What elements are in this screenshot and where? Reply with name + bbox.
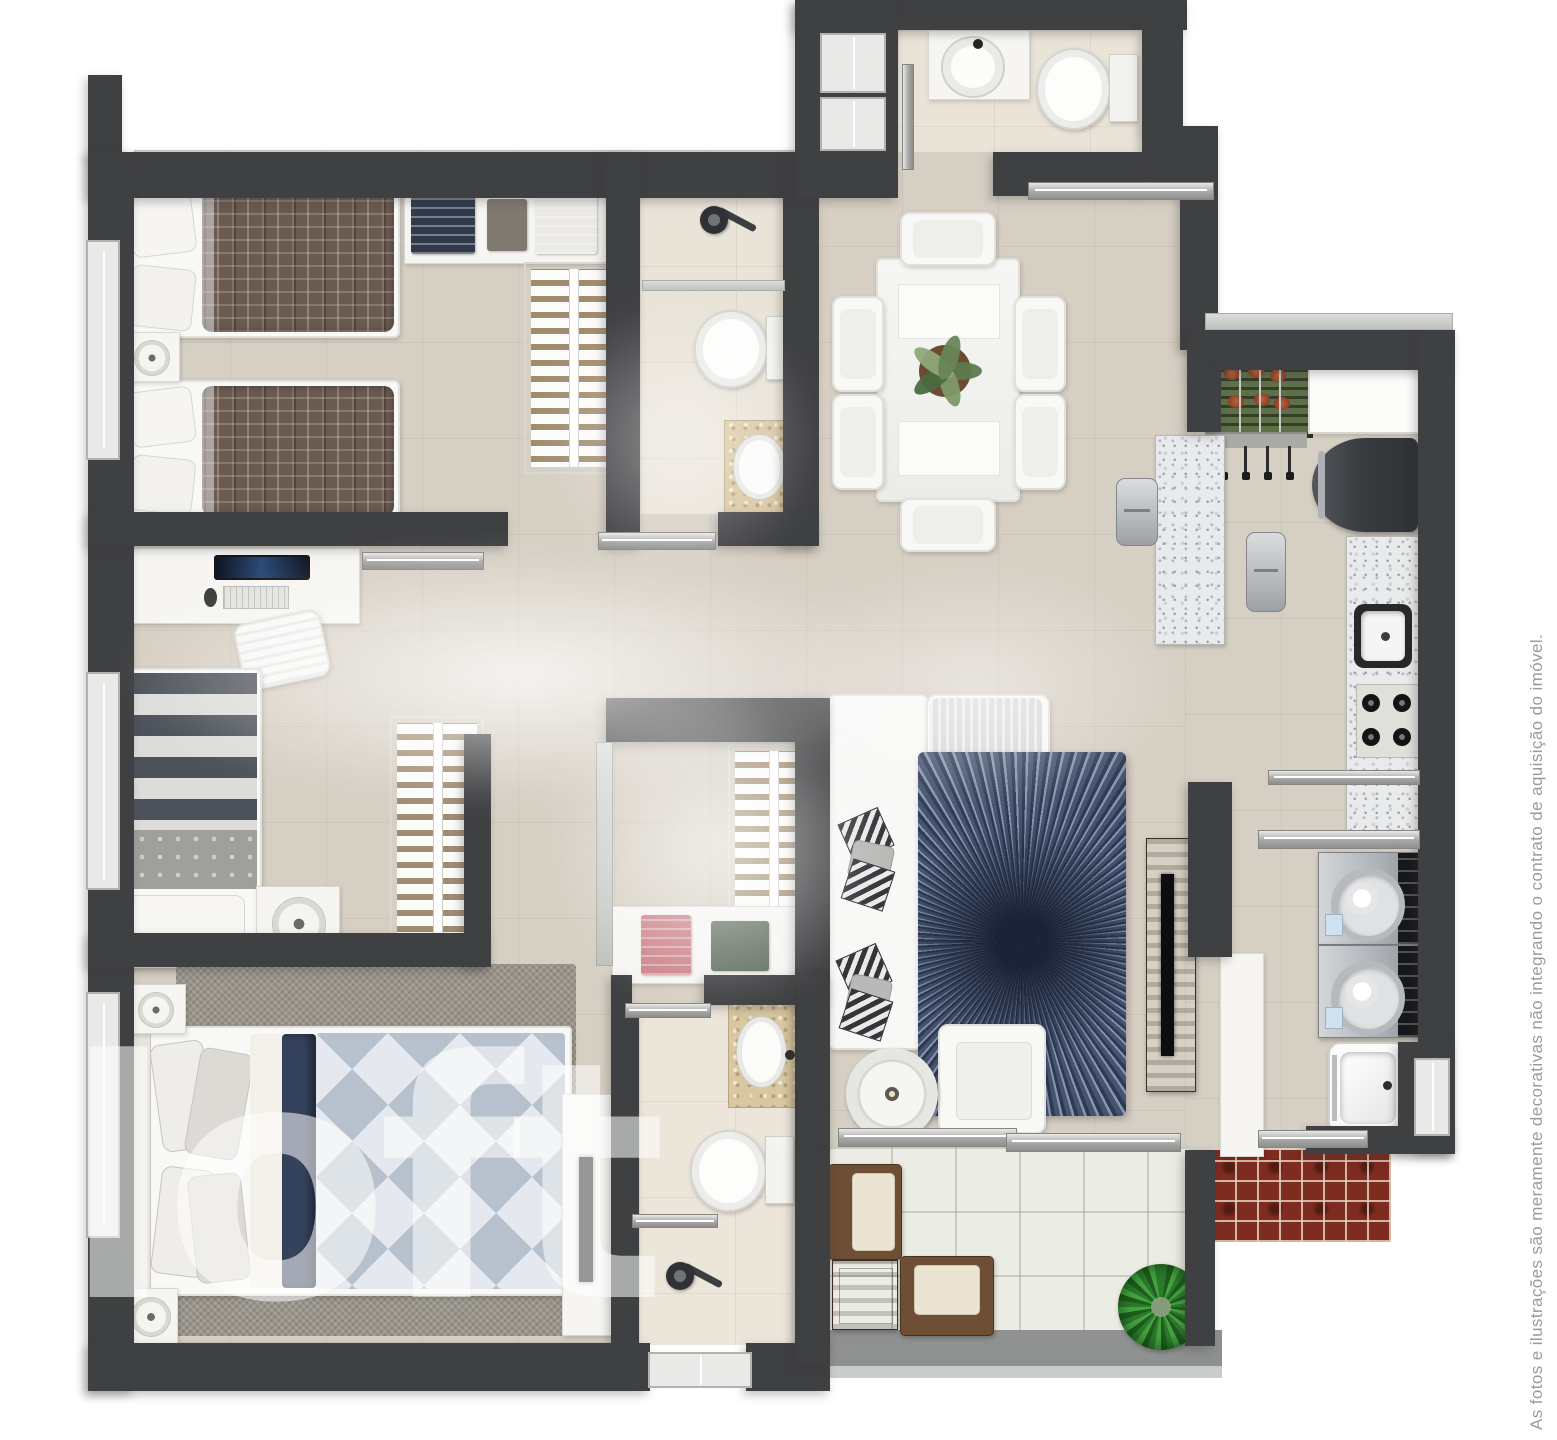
plaid-blanket <box>202 190 394 332</box>
window-bedroom2 <box>86 672 120 890</box>
grain <box>839 1268 892 1324</box>
island-stool-1 <box>1116 478 1158 546</box>
tv-screen <box>1161 874 1174 1055</box>
dining-partition-rail-highlight <box>1035 189 1208 191</box>
pillow <box>126 189 197 258</box>
pillow <box>127 385 197 448</box>
toilet-tank <box>1109 54 1138 122</box>
rack-rail <box>569 268 579 468</box>
grilled-meat <box>1254 393 1270 406</box>
kitchen-laundry-rail-highlight <box>1274 776 1415 778</box>
chair-cushion <box>1022 309 1058 379</box>
blanket-fold <box>202 190 214 332</box>
laundry-tub <box>1328 1042 1406 1134</box>
island-stool-2 <box>1246 532 1286 612</box>
balcony-left-wall <box>795 1150 828 1365</box>
bedroom2-door-rail <box>362 552 484 570</box>
keyboard <box>223 586 289 609</box>
twin-bed-1 <box>116 184 400 338</box>
kitchen-top-wall <box>1187 330 1453 370</box>
lavabo-right-wall <box>1142 28 1183 130</box>
washing-machine-1 <box>1318 852 1420 945</box>
living-armchair <box>938 1024 1046 1134</box>
dining-chair-top <box>900 212 996 266</box>
washing-machine-2 <box>1318 945 1420 1038</box>
bathroom1-door-rail-highlight <box>602 539 711 541</box>
closet-glass-partition <box>596 742 613 966</box>
window-lavabo-1 <box>820 33 886 93</box>
disclaimer-note: As fotos e ilustrações são meramente dec… <box>1527 610 1547 1430</box>
bedroom2-desk <box>116 548 360 624</box>
washer-drum <box>1346 882 1378 914</box>
mouse <box>204 588 217 607</box>
pillow <box>127 454 197 516</box>
closet-top-wall <box>606 698 830 742</box>
utensil-tip <box>1286 472 1294 480</box>
window-bedroom1 <box>86 240 120 460</box>
dining-chair-right-1 <box>1014 296 1066 392</box>
shelf-item-1 <box>711 921 769 971</box>
stool-line <box>1124 509 1150 512</box>
lavabo-shower-rail <box>902 64 914 170</box>
burner <box>1393 694 1411 712</box>
detergent-tray <box>1325 914 1343 936</box>
shower-head <box>700 206 728 234</box>
chair-cushion <box>913 220 983 258</box>
toilet-tank <box>765 1136 794 1204</box>
floor-plan-screenshot: loft As fotos e ilustrações são merament… <box>0 0 1557 1440</box>
hanging-utensil <box>1288 446 1291 473</box>
cooktop <box>1356 684 1420 758</box>
hanging-utensil <box>1266 446 1269 473</box>
window-lavabo-2 <box>820 97 886 151</box>
utensil-tip <box>1242 472 1250 480</box>
laundry-shelf-rail-highlight <box>1264 837 1414 839</box>
kitchen-sink <box>1354 604 1412 668</box>
chair-cushion <box>840 407 876 477</box>
living-side-table <box>846 1048 938 1140</box>
lavabo-sink <box>928 30 1030 100</box>
fridge-handle <box>1318 451 1325 519</box>
pillow <box>127 264 197 332</box>
master-bath-toilet <box>690 1130 794 1208</box>
balcony-railing-edge <box>818 1366 1222 1378</box>
bathroom1-toilet <box>694 310 794 384</box>
balcony-door-rail-2-highlight <box>1012 1140 1175 1142</box>
rack-rail <box>769 750 779 924</box>
grilled-meat <box>1270 369 1286 382</box>
dining-chair-right-2 <box>1014 394 1066 490</box>
chair-cushion <box>840 309 876 379</box>
plant-center <box>1151 1297 1172 1318</box>
faucet <box>785 1050 795 1060</box>
top-wall <box>88 152 798 198</box>
service-brick-floor <box>1213 1150 1391 1242</box>
dining-chair-left-1 <box>832 296 884 392</box>
monitor <box>214 555 310 580</box>
star-blanket <box>115 830 257 889</box>
cushion <box>914 1265 980 1315</box>
basin <box>733 434 787 499</box>
master-bath-sink <box>728 1000 802 1108</box>
window-laundry <box>1414 1058 1450 1136</box>
chair-cushion <box>1022 407 1058 477</box>
master-bath-shower <box>664 1258 724 1306</box>
bbq-window-rail <box>1205 313 1453 330</box>
cushion <box>852 1173 895 1252</box>
sofa-pillows-1 <box>840 812 900 908</box>
bedroom1-bath-wall <box>606 152 640 546</box>
balcony-door-rail-2 <box>1006 1133 1181 1152</box>
bbq-skewer-utensils <box>1222 446 1296 480</box>
toilet-bowl <box>1036 48 1111 130</box>
shelf-item-0 <box>641 915 691 975</box>
service-window-rail-highlight <box>1262 1137 1364 1139</box>
plaid-blanket <box>202 386 394 516</box>
shelf-item-2 <box>535 194 597 254</box>
toilet-bowl <box>694 310 768 388</box>
bathroom1-door-rail <box>598 532 716 550</box>
blanket-fold <box>202 386 214 516</box>
balcony-chair-2 <box>900 1256 994 1336</box>
laundry-cabinet <box>1220 953 1264 1157</box>
dining-partition-rail <box>1028 182 1214 200</box>
kitchen-laundry-rail <box>1268 770 1420 785</box>
shelf-item-0 <box>411 194 475 254</box>
seat-cushion <box>956 1042 1032 1120</box>
chair-cushion <box>913 506 983 544</box>
bedroom2-bottom-wall <box>88 933 491 967</box>
burner <box>1362 694 1380 712</box>
toilet-bowl <box>690 1130 767 1212</box>
balcony-chair-1 <box>828 1164 902 1260</box>
corner-tab <box>88 75 122 157</box>
place-setting <box>898 421 1001 476</box>
utensil-tip <box>1264 472 1272 480</box>
stool-line <box>1254 569 1278 572</box>
table-lamp <box>134 340 171 377</box>
burner <box>1393 728 1411 746</box>
bedroom2-door-rail-highlight <box>367 559 480 561</box>
window-master-bath <box>648 1352 752 1388</box>
balcony-right-wall <box>1185 1150 1215 1346</box>
balcony-door-rail-1-highlight <box>844 1135 1010 1137</box>
bathroom1-glass <box>642 280 785 291</box>
grilled-meat <box>1274 397 1290 410</box>
place-setting <box>898 284 1001 339</box>
striped-blanket <box>115 673 257 833</box>
dining-chair-left-2 <box>832 394 884 490</box>
refrigerator <box>1312 438 1418 532</box>
laundry-shelf-rail <box>1258 830 1420 849</box>
master-closet-shelf <box>612 906 806 984</box>
grilled-meat <box>1228 395 1244 408</box>
balcony-door-rail-1 <box>838 1128 1017 1147</box>
living-kitchen-wall <box>1188 782 1232 957</box>
dining-chair-bottom <box>900 498 996 552</box>
rack-rail <box>433 722 443 944</box>
burner <box>1362 728 1380 746</box>
bathroom1-shower <box>698 202 754 246</box>
detergent-tray <box>1325 1007 1343 1029</box>
side-rail <box>1332 1055 1337 1122</box>
balcony-table <box>832 1260 898 1330</box>
sofa-pillows-2 <box>838 948 896 1038</box>
lavabo-toilet <box>1036 48 1138 126</box>
hanging-utensil <box>1244 446 1247 473</box>
bedroom1-bottom-wall <box>88 512 508 546</box>
shower-head <box>666 1262 694 1290</box>
candle <box>885 1087 899 1101</box>
bathroom1-right-wall <box>783 152 819 546</box>
washer-drum <box>1346 975 1378 1007</box>
bathroom1-bottom-wall <box>718 512 819 546</box>
faucet <box>1383 1081 1392 1090</box>
service-window-rail <box>1258 1130 1368 1148</box>
kitchen-island <box>1155 435 1225 645</box>
bbq-left-wall <box>1187 368 1221 432</box>
right-outer-wall <box>1418 330 1455 1152</box>
twin-bed-2 <box>116 380 400 522</box>
faucet <box>1381 632 1390 641</box>
dining-centerpiece-plant <box>914 340 976 402</box>
shelf-item-1 <box>487 199 527 251</box>
loft-watermark-logo: loft <box>62 1018 655 1348</box>
basin <box>736 1016 787 1088</box>
